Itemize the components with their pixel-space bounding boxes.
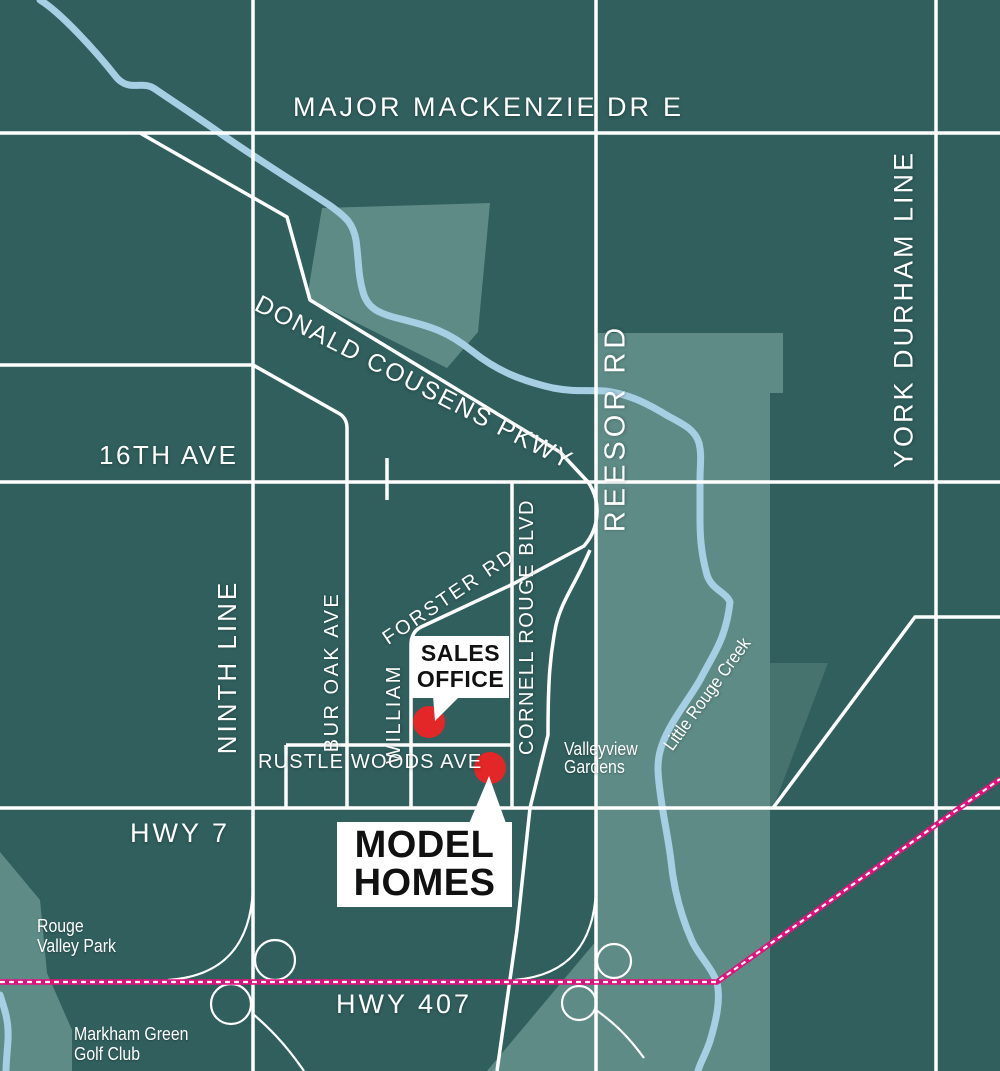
label-rouge-line1: Rouge <box>37 916 116 936</box>
model-homes-tail <box>468 776 507 826</box>
road-label-bur-oak-ave: BUR OAK AVE <box>322 592 342 753</box>
road-label-ninth-line: NINTH LINE <box>214 580 240 754</box>
road-label-rustle-woods-ave: RUSTLE WOODS AVE <box>258 752 482 772</box>
label-valleyview-line2: Gardens <box>564 758 638 776</box>
road-label-cornell-rouge-blvd: CORNELL ROUGE BLVD <box>517 499 537 755</box>
loop-ninth-sw <box>211 984 251 1024</box>
label-rouge-valley-park: Rouge Valley Park <box>37 916 116 956</box>
map-page: { "map": { "roads": { "major_mackenzie_1… <box>0 0 1000 1071</box>
sales-office-tail <box>433 696 460 721</box>
park-patch-southeast <box>487 940 597 1071</box>
road-label-major-mackenzie-e: E <box>663 94 684 121</box>
model-homes-line1: MODEL <box>337 826 512 864</box>
sales-office-callout: SALES OFFICE <box>412 636 509 698</box>
label-rouge-line2: Valley Park <box>37 936 116 956</box>
model-homes-line2: HOMES <box>337 864 512 902</box>
sales-office-line2: OFFICE <box>412 666 509 692</box>
road-label-major-mackenzie-dr: DR <box>607 94 652 121</box>
roads <box>0 0 1000 1071</box>
road-label-reesor-rd: REESOR RD <box>602 324 631 532</box>
road-label-york-durham-line: YORK DURHAM LINE <box>891 150 918 468</box>
label-valleyview-gardens: Valleyview Gardens <box>564 740 638 776</box>
road-label-16th-ave: 16TH AVE <box>99 442 238 468</box>
road-label-major-mackenzie: MAJOR MACKENZIE <box>293 94 598 121</box>
loop-ninth-ne <box>255 940 295 980</box>
road-label-william: WILLIAM <box>384 664 404 764</box>
map-canvas <box>0 0 1000 1071</box>
label-markham-green-golf: Markham Green Golf Club <box>74 1024 188 1064</box>
road-label-hwy-7: HWY 7 <box>130 820 230 847</box>
ramp-ninth-nw <box>168 888 253 980</box>
label-markham-line1: Markham Green <box>74 1024 188 1044</box>
park-patch-east-notch <box>770 663 828 808</box>
model-homes-callout: MODEL HOMES <box>337 822 512 907</box>
sales-office-line1: SALES <box>412 640 509 666</box>
ramp-ninth-se <box>253 1014 304 1071</box>
label-valleyview-line1: Valleyview <box>564 740 638 758</box>
label-markham-line2: Golf Club <box>74 1044 188 1064</box>
road-label-hwy-407: HWY 407 <box>336 991 472 1018</box>
road-concession <box>0 365 347 808</box>
